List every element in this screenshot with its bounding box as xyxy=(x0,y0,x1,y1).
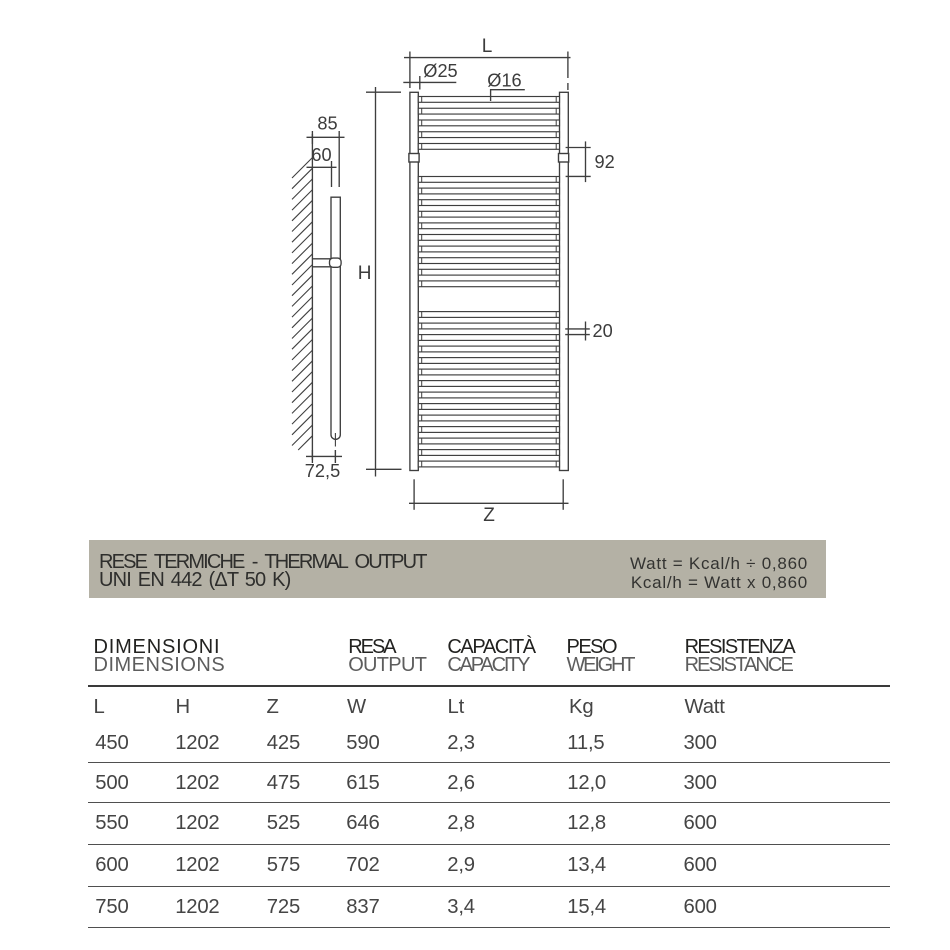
svg-text:L: L xyxy=(482,36,493,57)
svg-text:Ø25: Ø25 xyxy=(423,61,457,81)
svg-text:20: 20 xyxy=(593,321,613,341)
svg-text:60: 60 xyxy=(311,145,331,165)
svg-text:Ø16: Ø16 xyxy=(487,70,521,90)
svg-text:85: 85 xyxy=(317,113,337,133)
svg-text:72,5: 72,5 xyxy=(305,461,340,481)
svg-text:92: 92 xyxy=(595,152,615,172)
svg-text:H: H xyxy=(358,263,372,284)
svg-text:Z: Z xyxy=(483,505,495,526)
